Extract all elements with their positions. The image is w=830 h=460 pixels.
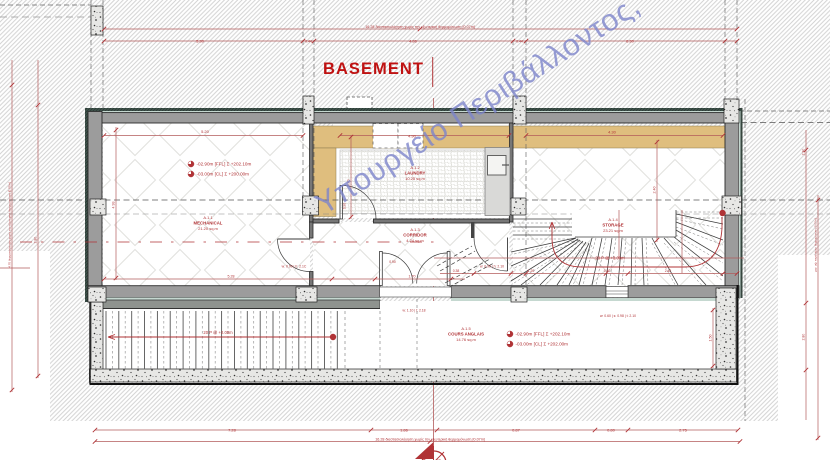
- svg-text:A.1.1: A.1.1: [203, 215, 213, 220]
- svg-text:1.50: 1.50: [709, 335, 713, 342]
- svg-text:2.90: 2.90: [802, 149, 806, 156]
- svg-text:2.75: 2.75: [679, 427, 688, 432]
- svg-text:w: 0.90 | h: 2.10: w: 0.90 | h: 2.10: [480, 265, 504, 269]
- svg-text:-02.90m [FFL] Σ +202.10m: -02.90m [FFL] Σ +202.10m: [516, 332, 571, 337]
- svg-text:23.21 sq.m: 23.21 sq.m: [603, 228, 623, 233]
- svg-text:0.80: 0.80: [604, 269, 611, 273]
- svg-text:MECHANICAL: MECHANICAL: [194, 221, 223, 226]
- svg-text:LAUNDRY: LAUNDRY: [405, 171, 426, 176]
- svg-text:A.1.5: A.1.5: [461, 326, 471, 331]
- svg-text:4.24 sq.m: 4.24 sq.m: [406, 238, 424, 243]
- svg-text:1.70: 1.70: [409, 275, 416, 279]
- svg-text:4.70 θερμοπρόσοψη χωρίς την εξ: 4.70 θερμοπρόσοψη χωρίς την εξωτερική θε…: [8, 182, 12, 268]
- svg-text:1.20: 1.20: [528, 269, 535, 273]
- svg-text:0.90: 0.90: [389, 260, 396, 264]
- svg-text:2.42: 2.42: [665, 269, 672, 273]
- svg-text:w: 1.10 | t: 2.18: w: 1.10 | t: 2.18: [402, 309, 425, 313]
- svg-text:10.25 sq.m: 10.25 sq.m: [405, 176, 425, 181]
- svg-text:14.76 sq.m: 14.76 sq.m: [456, 337, 476, 342]
- svg-text:7.28: 7.28: [228, 427, 237, 432]
- svg-text:STORAGE: STORAGE: [602, 223, 623, 228]
- svg-text:5.30: 5.30: [196, 38, 205, 43]
- svg-text:5.28: 5.28: [228, 275, 235, 279]
- svg-text:COURS ANGLAIS: COURS ANGLAIS: [448, 332, 484, 337]
- svg-text:0.44: 0.44: [305, 39, 312, 43]
- svg-text:2.40: 2.40: [653, 187, 657, 194]
- svg-text:4.93: 4.93: [112, 202, 116, 209]
- svg-text:0.87: 0.87: [512, 427, 521, 432]
- svg-text:20 P @ +2.00m: 20 P @ +2.00m: [203, 330, 233, 335]
- svg-text:2.80: 2.80: [802, 334, 806, 341]
- svg-text:16.28 διαστασιολόγηση χωρίς τη: 16.28 διαστασιολόγηση χωρίς την εξωτερικ…: [365, 25, 475, 29]
- svg-text:2.80: 2.80: [34, 237, 38, 244]
- svg-text:A.1.4: A.1.4: [608, 217, 618, 222]
- svg-text:-03.00m [CL] Σ +202.00m: -03.00m [CL] Σ +202.00m: [516, 342, 569, 347]
- svg-text:4.30: 4.30: [608, 130, 617, 135]
- svg-text:BASEMENT: BASEMENT: [323, 60, 424, 78]
- svg-text:w: 0.90 | h: 2.1C: w: 0.90 | h: 2.1C: [282, 265, 307, 269]
- svg-text:-02.90m [FFL] Σ +202.10m: -02.90m [FFL] Σ +202.10m: [197, 162, 252, 167]
- svg-text:0.80: 0.80: [607, 427, 616, 432]
- svg-text:4.86: 4.86: [409, 38, 418, 43]
- svg-text:0.38: 0.38: [453, 269, 460, 273]
- svg-text:A.1.3: A.1.3: [410, 227, 420, 232]
- svg-text:21.20 sq.m: 21.20 sq.m: [198, 226, 218, 231]
- svg-text:-03.00m [CL] Σ +200.00m: -03.00m [CL] Σ +200.00m: [197, 172, 250, 177]
- svg-text:CORRIDOR: CORRIDOR: [403, 233, 427, 238]
- svg-text:w: 0.60 | s: 0.98 | t: 2.10: w: 0.60 | s: 0.98 | t: 2.10: [600, 314, 636, 318]
- svg-text:μεγ. υψ. κτιρίου/μεγ. θερμομόν: μεγ. υψ. κτιρίου/μεγ. θερμομόνωση [0.07m…: [814, 218, 818, 272]
- svg-text:20 P @ +3.00m: 20 P @ +3.00m: [595, 256, 625, 261]
- svg-text:6.30: 6.30: [626, 38, 635, 43]
- svg-text:0.44: 0.44: [516, 39, 523, 43]
- svg-text:1.86: 1.86: [400, 427, 409, 432]
- svg-text:16.28 διαστασιολόγηση χωρίς τη: 16.28 διαστασιολόγηση χωρίς την εξωτερικ…: [375, 437, 485, 441]
- svg-text:5.20: 5.20: [201, 129, 210, 134]
